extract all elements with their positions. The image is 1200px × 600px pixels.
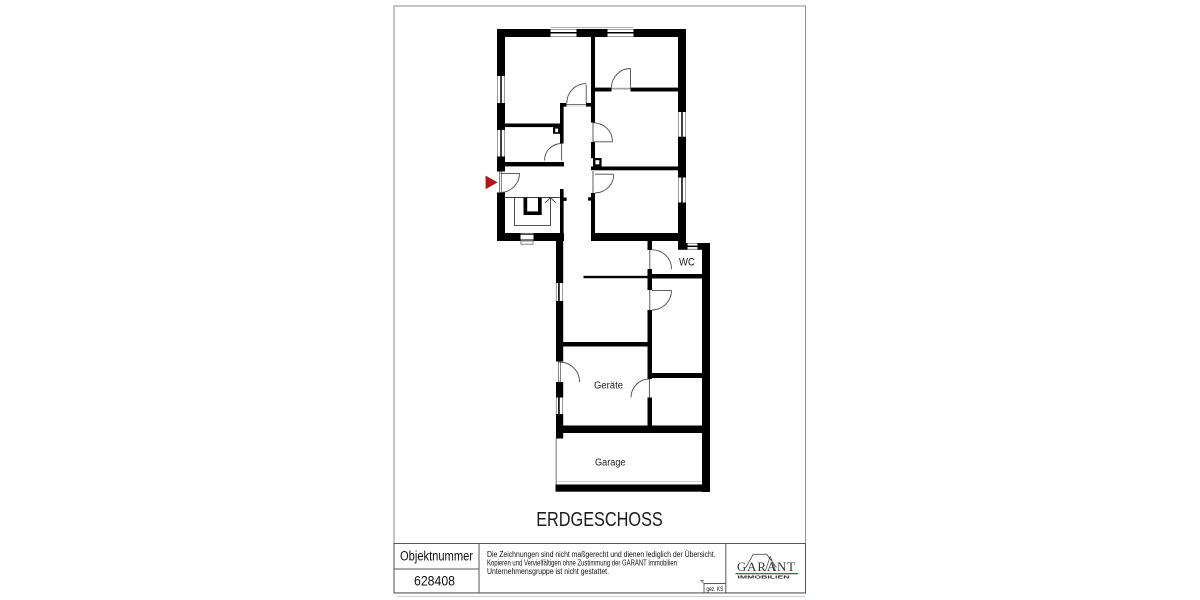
svg-text:Unternehmensgruppe ist nicht g: Unternehmensgruppe ist nicht gestattet. xyxy=(487,567,609,576)
svg-text:gez. KS: gez. KS xyxy=(706,586,723,593)
svg-text:WC: WC xyxy=(679,257,695,269)
svg-text:628408: 628408 xyxy=(414,573,455,588)
svg-text:Garage: Garage xyxy=(595,457,626,468)
svg-text:ERDGESCHOSS: ERDGESCHOSS xyxy=(536,509,663,531)
svg-text:IMMOBILIEN: IMMOBILIEN xyxy=(738,575,790,580)
svg-text:Objektnummer: Objektnummer xyxy=(400,549,473,564)
svg-text:Geräte: Geräte xyxy=(594,381,623,392)
